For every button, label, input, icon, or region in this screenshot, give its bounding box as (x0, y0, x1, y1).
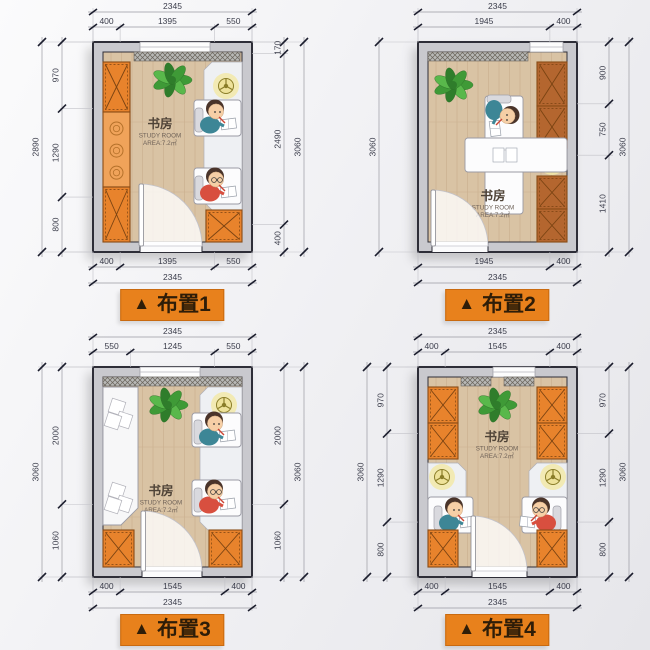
svg-text:2000: 2000 (273, 426, 283, 445)
svg-text:400: 400 (556, 341, 570, 351)
svg-text:1545: 1545 (488, 581, 507, 591)
svg-text:1945: 1945 (474, 16, 493, 26)
svg-text:1290: 1290 (598, 468, 608, 487)
plan-4-badge: ▲ 布置4 (445, 614, 549, 646)
svg-text:400: 400 (556, 256, 570, 266)
svg-text:2345: 2345 (488, 1, 507, 11)
svg-text:900: 900 (598, 66, 608, 80)
svg-text:970: 970 (376, 393, 386, 407)
triangle-icon: ▲ (458, 294, 475, 314)
svg-text:800: 800 (51, 217, 61, 231)
svg-text:2490: 2490 (273, 129, 283, 148)
svg-text:400: 400 (99, 256, 113, 266)
svg-text:400: 400 (99, 16, 113, 26)
svg-text:3060: 3060 (293, 137, 303, 156)
svg-text:AREA:7.2㎡: AREA:7.2㎡ (480, 451, 515, 460)
svg-text:750: 750 (598, 122, 608, 136)
svg-text:3060: 3060 (293, 462, 303, 481)
svg-text:3060: 3060 (31, 462, 41, 481)
svg-text:170: 170 (273, 40, 283, 54)
svg-text:1290: 1290 (51, 143, 61, 162)
svg-text:800: 800 (598, 542, 608, 556)
svg-text:2345: 2345 (163, 1, 182, 11)
svg-text:400: 400 (424, 341, 438, 351)
plan-1: 书房STUDY ROOMAREA:7.2㎡4001395550234540013… (0, 0, 325, 325)
svg-text:2890: 2890 (31, 137, 41, 156)
plan-2-badge-label: 布置2 (482, 292, 536, 317)
plan-4-floorplan: 书房STUDY ROOMAREA:7.2㎡4001545400234540015… (325, 325, 650, 650)
svg-text:STUDY ROOM: STUDY ROOM (472, 205, 515, 212)
svg-text:书房: 书房 (148, 483, 173, 498)
svg-text:1945: 1945 (474, 256, 493, 266)
plan-1-badge-label: 布置1 (157, 292, 211, 317)
svg-text:970: 970 (51, 68, 61, 82)
plan-1-floorplan: 书房STUDY ROOMAREA:7.2㎡4001395550234540013… (0, 0, 325, 325)
svg-text:1060: 1060 (51, 531, 61, 550)
svg-text:1410: 1410 (598, 194, 608, 213)
svg-text:STUDY ROOM: STUDY ROOM (139, 133, 182, 140)
svg-text:3060: 3060 (618, 462, 628, 481)
svg-text:1545: 1545 (488, 341, 507, 351)
plan-3-badge: ▲ 布置3 (120, 614, 224, 646)
svg-text:800: 800 (376, 542, 386, 556)
svg-text:AREA:7.2㎡: AREA:7.2㎡ (143, 138, 178, 147)
svg-text:书房: 书房 (480, 188, 505, 203)
plan-3: 书房STUDY ROOMAREA:7.2㎡5501245550234540015… (0, 325, 325, 650)
svg-text:400: 400 (556, 16, 570, 26)
svg-text:2345: 2345 (488, 597, 507, 607)
svg-text:书房: 书房 (147, 116, 172, 131)
svg-text:3060: 3060 (618, 137, 628, 156)
svg-text:2345: 2345 (488, 272, 507, 282)
svg-text:400: 400 (556, 581, 570, 591)
svg-text:STUDY ROOM: STUDY ROOM (476, 446, 519, 453)
svg-text:2345: 2345 (163, 326, 182, 336)
plan-4-badge-label: 布置4 (482, 617, 536, 642)
svg-text:3060: 3060 (368, 137, 378, 156)
svg-text:550: 550 (105, 341, 119, 351)
svg-text:400: 400 (273, 231, 283, 245)
svg-text:2345: 2345 (163, 272, 182, 282)
svg-text:550: 550 (226, 256, 240, 266)
svg-text:书房: 书房 (484, 429, 509, 444)
svg-text:1395: 1395 (158, 256, 177, 266)
svg-text:400: 400 (99, 581, 113, 591)
triangle-icon: ▲ (133, 294, 150, 314)
plan-3-badge-label: 布置3 (157, 617, 211, 642)
plan-4: 书房STUDY ROOMAREA:7.2㎡4001545400234540015… (325, 325, 650, 650)
svg-text:1245: 1245 (163, 341, 182, 351)
svg-text:550: 550 (226, 16, 240, 26)
plan-2: 书房STUDY ROOMAREA:7.2㎡1945400234519454002… (325, 0, 650, 325)
svg-text:400: 400 (424, 581, 438, 591)
svg-text:550: 550 (226, 341, 240, 351)
floor-plan-sheet: 书房STUDY ROOMAREA:7.2㎡4001395550234540013… (0, 0, 650, 650)
svg-text:1545: 1545 (163, 581, 182, 591)
triangle-icon: ▲ (458, 619, 475, 639)
triangle-icon: ▲ (133, 619, 150, 639)
svg-text:STUDY ROOM: STUDY ROOM (140, 500, 183, 507)
svg-text:1060: 1060 (273, 531, 283, 550)
plan-2-badge: ▲ 布置2 (445, 289, 549, 321)
plan-3-floorplan: 书房STUDY ROOMAREA:7.2㎡5501245550234540015… (0, 325, 325, 650)
svg-text:AREA:7.2㎡: AREA:7.2㎡ (476, 210, 511, 219)
svg-text:3060: 3060 (356, 462, 366, 481)
svg-text:2345: 2345 (488, 326, 507, 336)
plan-2-floorplan: 书房STUDY ROOMAREA:7.2㎡1945400234519454002… (325, 0, 650, 325)
svg-text:2000: 2000 (51, 426, 61, 445)
svg-text:2345: 2345 (163, 597, 182, 607)
plan-1-badge: ▲ 布置1 (120, 289, 224, 321)
svg-text:1290: 1290 (376, 468, 386, 487)
svg-text:400: 400 (231, 581, 245, 591)
svg-text:970: 970 (598, 393, 608, 407)
svg-text:1395: 1395 (158, 16, 177, 26)
